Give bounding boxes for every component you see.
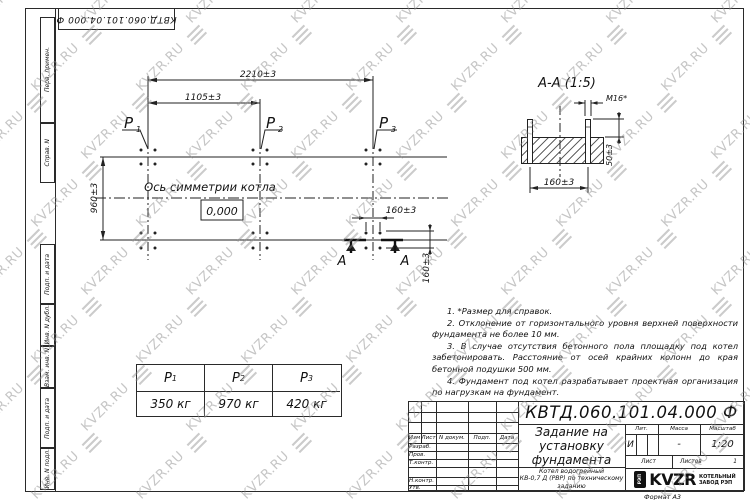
doc-number: КВТД.060.101.04.000 Ф (518, 401, 745, 424)
side-label-perv-primen: Перв. примен. (40, 17, 55, 123)
title-grid-line (408, 422, 518, 423)
notes-block: 1. *Размер для справок. 2. Отклонение от… (432, 306, 738, 399)
kvzr-emblem-icon: РЭП (634, 471, 646, 488)
title-grid-line (408, 467, 518, 468)
mass-value: - (658, 434, 700, 455)
note-4: 4. Фундамент под котел разрабатывает про… (432, 376, 738, 399)
row-razrab: Разраб. (409, 443, 436, 451)
mass-label: Масса (658, 424, 700, 434)
title-grid-line (647, 434, 648, 455)
drawing-title: Задание на установку фундамента (518, 424, 625, 467)
scale-label: Масштаб (700, 424, 745, 434)
drawing-sheet: КВТД.060.101.04.000 Ф Перв. примен. Спра… (0, 0, 750, 500)
side-label-inv-dubl: Инв. N дубл. (40, 304, 55, 346)
anchor-stud-left (527, 119, 533, 164)
kvzr-logo-subtitle: КОТЕЛЬНЫЙ ЗАВОД РЭП (699, 474, 736, 486)
load-value-p2: 970 кг (205, 392, 273, 416)
sheets-cell: Листов 1 (672, 455, 745, 468)
title-grid-line (636, 434, 637, 455)
load-table-header-p2: P2 (205, 365, 273, 392)
watermark-text: KVZR.RU (0, 109, 27, 163)
row-tkontr: Т.контр. (409, 459, 436, 467)
scale-value: 1:20 (700, 434, 745, 455)
load-value-p1: 350 кг (137, 392, 205, 416)
corner-stamp-box: КВТД.060.101.04.000 Ф (58, 8, 175, 30)
load-table-header-p1: P1 (137, 365, 205, 392)
watermark-text: KVZR.RU (0, 245, 27, 299)
load-table: P1 P2 P3 350 кг 970 кг 420 кг (136, 364, 342, 417)
lit-value: И (625, 434, 636, 455)
watermark-text: KVZR.RU (0, 0, 27, 26)
col-data: Дата (496, 433, 518, 443)
sheets-value: 1 (733, 459, 737, 465)
side-label-podp-data-1: Подп. и дата (40, 244, 55, 304)
row-prov: Пров. (409, 451, 436, 459)
load-value-p3: 420 кг (273, 392, 340, 416)
watermark-text: KVZR.RU (0, 381, 27, 435)
sheets-label: Листов (680, 459, 702, 465)
company-logo: РЭП KVZR КОТЕЛЬНЫЙ ЗАВОД РЭП (625, 468, 745, 491)
note-3: 3. В случае отсутствия бетонного пола пл… (432, 341, 738, 376)
note-1: 1. *Размер для справок. (432, 306, 738, 318)
note-2: 2. Отклонение от горизонтального уровня … (432, 318, 738, 341)
concrete-foundation-block (521, 137, 604, 164)
sheet-label: Лист (625, 455, 672, 468)
corner-stamp-text: КВТД.060.101.04.000 Ф (56, 14, 177, 24)
kvzr-logo-text: KVZR (649, 470, 696, 489)
side-label-vzam-inv: Взам. инв. N (40, 346, 55, 388)
col-izm: Изм (408, 433, 421, 443)
load-table-header-p3: P3 (273, 365, 340, 392)
anchor-stud-right (585, 119, 591, 164)
title-grid-line (408, 412, 518, 413)
side-label-inv-podl: Инв. N подл. (40, 448, 55, 490)
product-name: Котел водогрейный КВ-0,7 Д (РВР) по техн… (518, 467, 625, 491)
col-n-dokum: N докум. (436, 433, 468, 443)
side-label-podp-data-2: Подп. и дата (40, 388, 55, 448)
format-note: Формат А3 (644, 493, 681, 500)
side-label-sprav-n: Справ. N (40, 123, 55, 183)
col-podp: Подп. (468, 433, 496, 443)
row-utv: Утв. (409, 485, 436, 491)
row-nkontr: Н.контр. (409, 477, 436, 485)
col-list: Лист (421, 433, 436, 443)
lit-label: Лит. (625, 424, 658, 434)
inner-frame-left (55, 8, 56, 492)
